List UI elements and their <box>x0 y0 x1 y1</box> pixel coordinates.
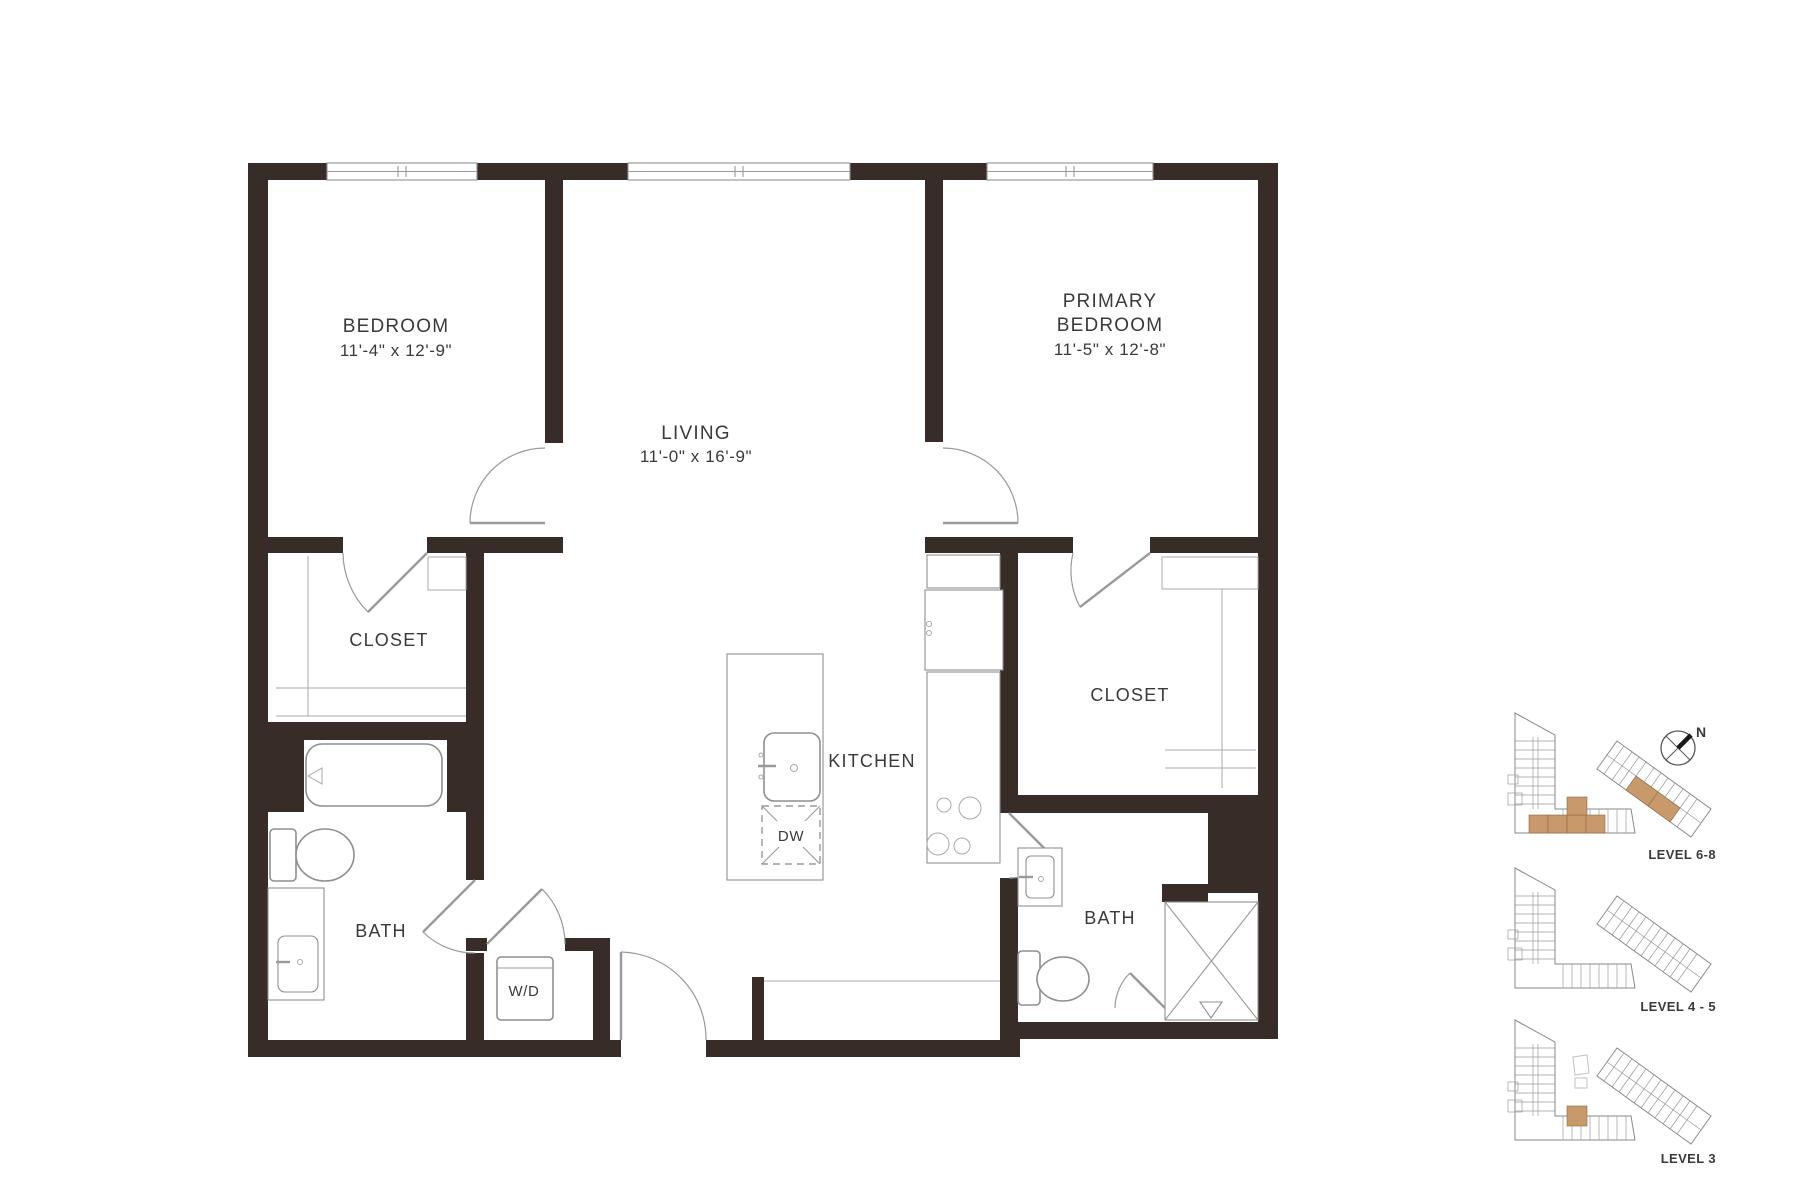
bedroom-door <box>470 448 545 523</box>
level-3-label: LEVEL 3 <box>1661 1151 1716 1166</box>
toilet-icon <box>1018 951 1089 1005</box>
bathtub-icon <box>306 744 442 806</box>
keyplan-level-4-5: LEVEL 4 - 5 <box>1508 868 1716 1014</box>
closet-right-label: CLOSET <box>1090 685 1169 705</box>
compass-icon: N <box>1661 724 1706 765</box>
primary-bedroom-label-line2: BEDROOM <box>1057 315 1164 336</box>
laundry-label: W/D <box>509 983 540 1000</box>
kitchen-label: KITCHEN <box>828 751 915 771</box>
kitchen-island <box>727 654 823 880</box>
island-sink-icon <box>758 733 820 801</box>
shower-icon <box>1165 902 1258 1020</box>
floor-plan-page: BEDROOM 11'-4" x 12'-9" LIVING 11'-0" x … <box>0 0 1800 1200</box>
level-4-5-label: LEVEL 4 - 5 <box>1640 999 1716 1014</box>
bedroom-label: BEDROOM <box>343 316 450 337</box>
window-bedroom <box>327 163 477 180</box>
entry-door <box>621 952 706 1040</box>
windows <box>327 163 1153 180</box>
vanity-sink-icon <box>1018 848 1062 906</box>
primary-bedroom-dims: 11'-5" x 12'-8" <box>1054 340 1166 359</box>
bath-left-label: BATH <box>355 921 406 941</box>
primary-bedroom-door <box>943 448 1018 523</box>
primary-bedroom-label-line1: PRIMARY <box>1063 291 1158 312</box>
floor-plan-canvas: BEDROOM 11'-4" x 12'-9" LIVING 11'-0" x … <box>0 0 1800 1200</box>
closet-left-door <box>343 553 427 612</box>
toilet-icon <box>270 829 354 881</box>
bath-right-label: BATH <box>1084 908 1135 928</box>
laundry-door <box>487 889 565 944</box>
living-label: LIVING <box>661 423 731 444</box>
window-living <box>628 163 850 180</box>
north-label: N <box>1696 724 1706 740</box>
shower-door <box>1115 973 1165 1008</box>
living-dims: 11'-0" x 16'-9" <box>640 447 752 466</box>
dishwasher-label: DW <box>778 828 804 845</box>
closet-left-label: CLOSET <box>349 630 428 650</box>
refrigerator-icon <box>925 590 1003 670</box>
keyplan: N LEVEL 6-8 LEVEL 4 - 5 <box>1508 713 1716 1166</box>
closet-right-shelving <box>1162 557 1258 788</box>
vanity-sink-icon <box>268 888 324 1000</box>
window-primary-bedroom <box>987 163 1153 180</box>
bedroom-dims: 11'-4" x 12'-9" <box>340 341 452 360</box>
keyplan-level-3: LEVEL 3 <box>1508 1020 1716 1166</box>
level-6-8-label: LEVEL 6-8 <box>1648 847 1716 862</box>
closet-right-door <box>1071 553 1150 607</box>
